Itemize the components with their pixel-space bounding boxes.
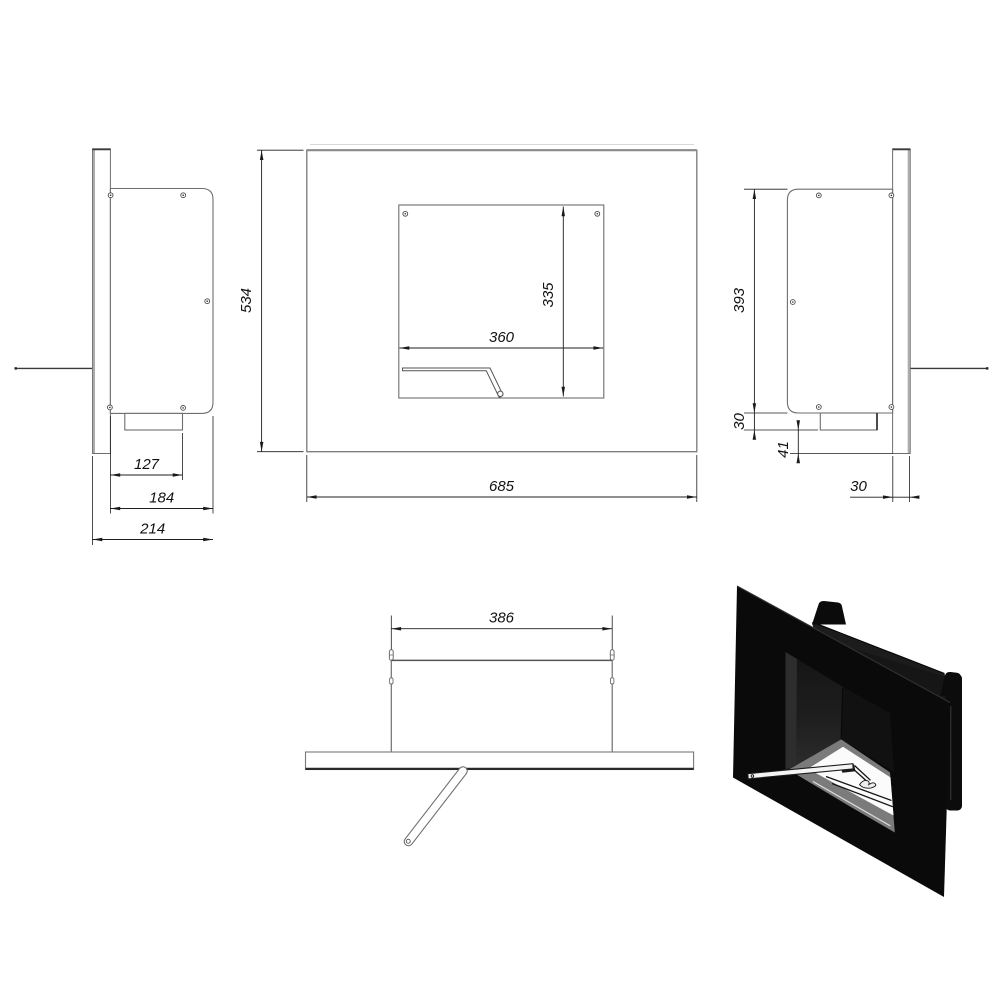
svg-text:393: 393 (731, 287, 748, 313)
svg-text:386: 386 (489, 610, 515, 627)
svg-text:127: 127 (134, 456, 160, 473)
svg-text:41: 41 (775, 441, 792, 458)
svg-text:360: 360 (489, 329, 515, 346)
svg-text:30: 30 (731, 413, 748, 430)
svg-text:30: 30 (850, 478, 867, 495)
svg-text:685: 685 (489, 478, 515, 495)
svg-text:214: 214 (139, 521, 165, 538)
svg-text:534: 534 (238, 288, 255, 313)
svg-text:335: 335 (540, 282, 557, 308)
svg-text:184: 184 (149, 490, 174, 507)
